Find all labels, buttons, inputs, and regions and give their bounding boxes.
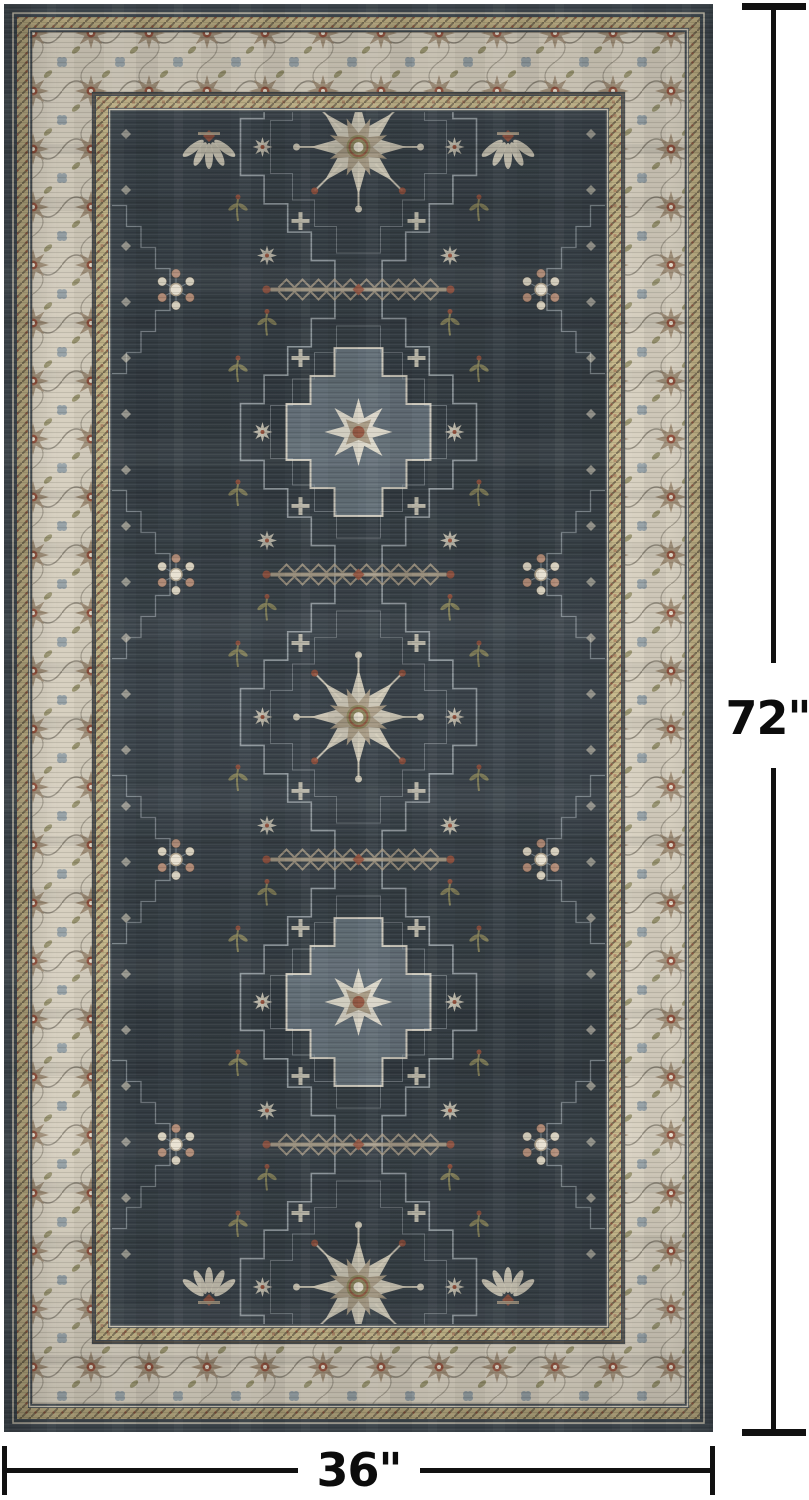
height-dimension-line-lower <box>771 768 776 1436</box>
width-dimension-cap-left <box>2 1446 7 1495</box>
width-dimension-line-right <box>420 1468 712 1473</box>
height-dimension-line-upper <box>771 3 776 663</box>
width-dimension-line-left <box>6 1468 298 1473</box>
width-label: 36" <box>317 1443 402 1497</box>
height-dimension-cap-top <box>742 3 806 10</box>
height-label: 72" <box>726 691 809 745</box>
width-dimension-cap-right <box>710 1446 715 1495</box>
product-image-canvas: 72" 36" <box>0 0 809 1500</box>
rug-image <box>4 4 713 1432</box>
height-dimension-cap-bottom <box>742 1429 806 1436</box>
